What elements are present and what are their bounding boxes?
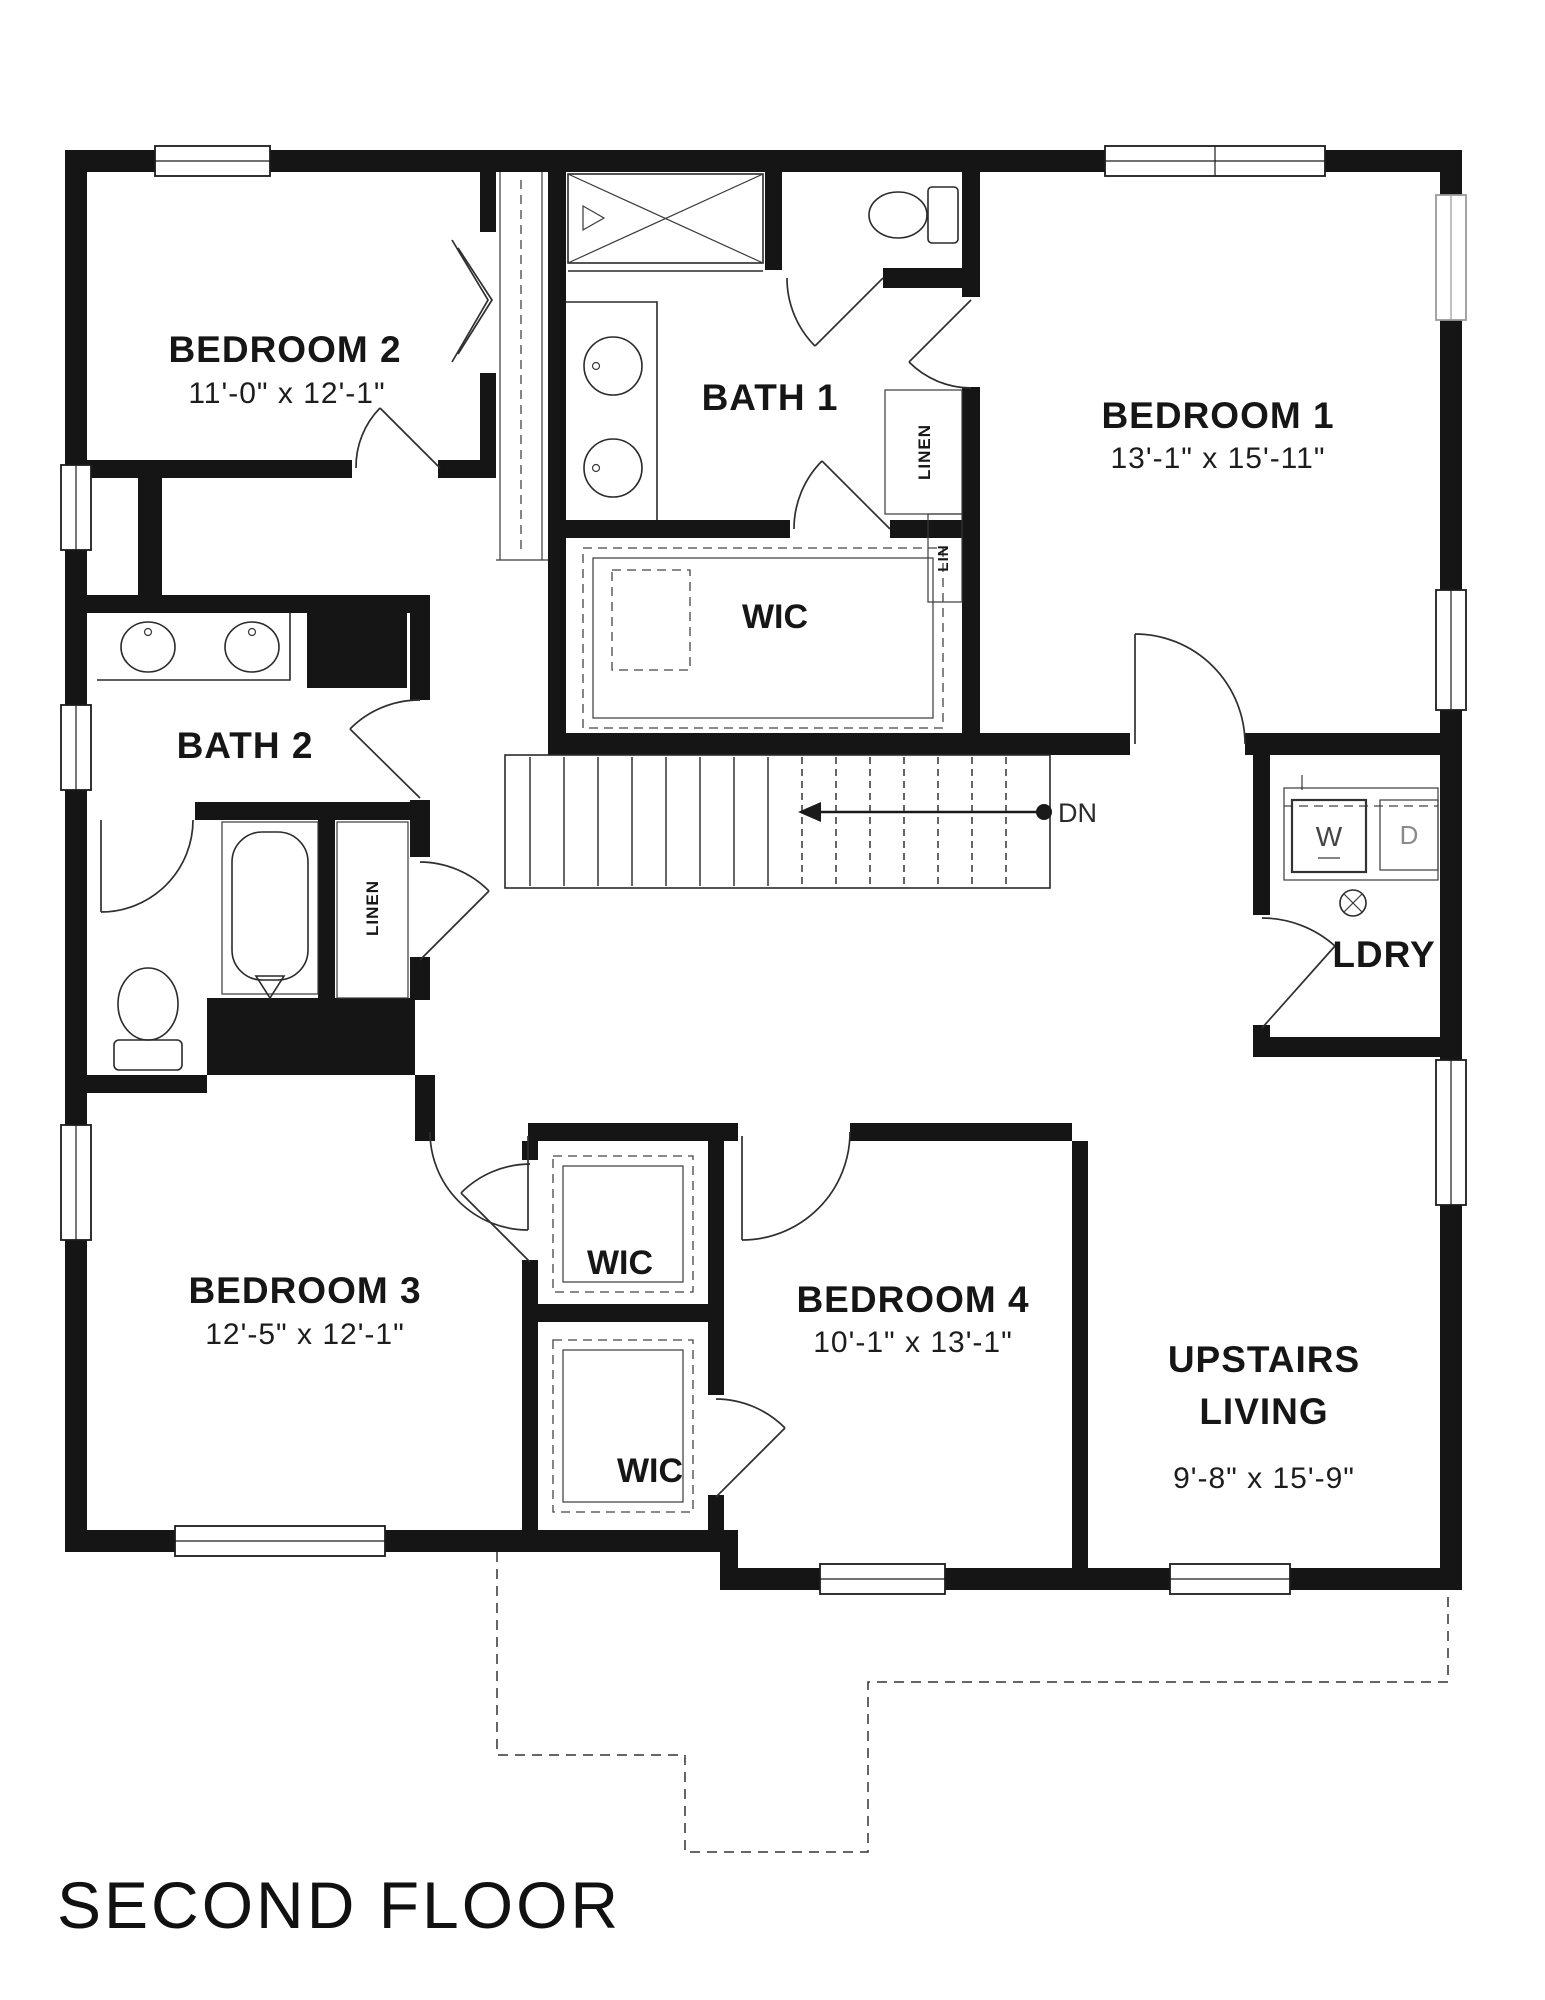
door-laundry — [1262, 918, 1335, 1028]
door-bath1-wc — [787, 278, 883, 346]
window-upstairs-living-bottom — [1170, 1564, 1290, 1594]
window-hall-left — [61, 465, 91, 550]
toilet-bath2 — [114, 968, 182, 1070]
door-bath1-bedroom1 — [909, 300, 971, 388]
wall-poche-chase — [307, 612, 407, 688]
label-bedroom3: BEDROOM 3 — [188, 1270, 421, 1311]
vanity-bath1 — [566, 302, 657, 520]
door-wic-bedroom4 — [716, 1399, 785, 1497]
shower-bath1 — [568, 174, 763, 271]
door-bedroom2 — [356, 408, 440, 468]
window-bedroom1-right-upper — [1436, 195, 1466, 320]
toilet-bath1 — [869, 187, 958, 243]
window-bedroom3-bottom — [175, 1526, 385, 1556]
dims-bedroom3: 12'-5" x 12'-1" — [205, 1318, 405, 1351]
label-upstairs-living-2: LIVING — [1199, 1391, 1328, 1432]
window-upstairs-living-right — [1436, 1060, 1466, 1205]
window-bedroom1-top — [1105, 146, 1325, 176]
dims-bedroom1: 13'-1" x 15'-11" — [1111, 442, 1326, 475]
bathtub-bath2 — [222, 822, 318, 998]
label-wic-master: WIC — [742, 598, 808, 636]
stairs-dn-label: DN — [1058, 798, 1097, 828]
door-bedroom1 — [1135, 634, 1245, 744]
label-linen-bath2: LINEN — [363, 880, 382, 936]
label-wic-bedroom4: WIC — [617, 1452, 683, 1490]
door-bath2-linen — [420, 862, 489, 960]
label-wic-bedroom3: WIC — [587, 1244, 653, 1282]
label-bedroom2: BEDROOM 2 — [168, 329, 401, 370]
door-bath2 — [350, 700, 420, 798]
label-linen-bath1: LINEN — [915, 424, 934, 480]
label-lin-bath1: LIN — [935, 544, 952, 571]
window-bedroom2-top — [155, 146, 270, 176]
label-bedroom4: BEDROOM 4 — [796, 1279, 1029, 1320]
stairs: DN — [505, 755, 1097, 888]
dashed-outline-below — [497, 1552, 1448, 1852]
label-bath1: BATH 1 — [702, 377, 839, 418]
label-laundry: LDRY — [1332, 934, 1435, 975]
window-bath2-left — [61, 705, 91, 790]
bifold-door-bedroom2-closet — [452, 240, 492, 362]
window-bedroom3-left — [61, 1125, 91, 1240]
washer-label: W — [1316, 821, 1343, 852]
vanity-bath2 — [97, 613, 290, 680]
label-upstairs-living-1: UPSTAIRS — [1168, 1339, 1360, 1380]
dims-bedroom4: 10'-1" x 13'-1" — [813, 1326, 1013, 1359]
window-bedroom4-bottom — [820, 1564, 945, 1594]
door-bedroom3 — [430, 1132, 528, 1230]
labels-layer: BEDROOM 2 11'-0" x 12'-1" BATH 1 BEDROOM… — [168, 329, 1435, 1495]
label-bath2: BATH 2 — [177, 725, 314, 766]
door-bath2-inner — [101, 820, 193, 912]
dims-upstairs-living: 9'-8" x 15'-9" — [1173, 1462, 1355, 1495]
dryer-label: D — [1400, 820, 1419, 850]
window-bedroom1-right-lower — [1436, 590, 1466, 710]
page-title: SECOND FLOOR — [57, 1868, 621, 1942]
dims-bedroom2: 11'-0" x 12'-1" — [188, 377, 385, 410]
wall-poche-bath2 — [207, 998, 415, 1075]
door-bedroom4 — [742, 1132, 850, 1240]
door-wic-master — [794, 461, 890, 529]
floor-plan-page: DN BEDROOM 2 11'-0" x 12'-1" BATH 1 BEDR… — [0, 0, 1545, 2000]
floor-drain-icon — [1340, 890, 1366, 916]
floor-plan-drawing: DN BEDROOM 2 11'-0" x 12'-1" BATH 1 BEDR… — [0, 0, 1545, 2000]
label-bedroom1: BEDROOM 1 — [1101, 395, 1334, 436]
